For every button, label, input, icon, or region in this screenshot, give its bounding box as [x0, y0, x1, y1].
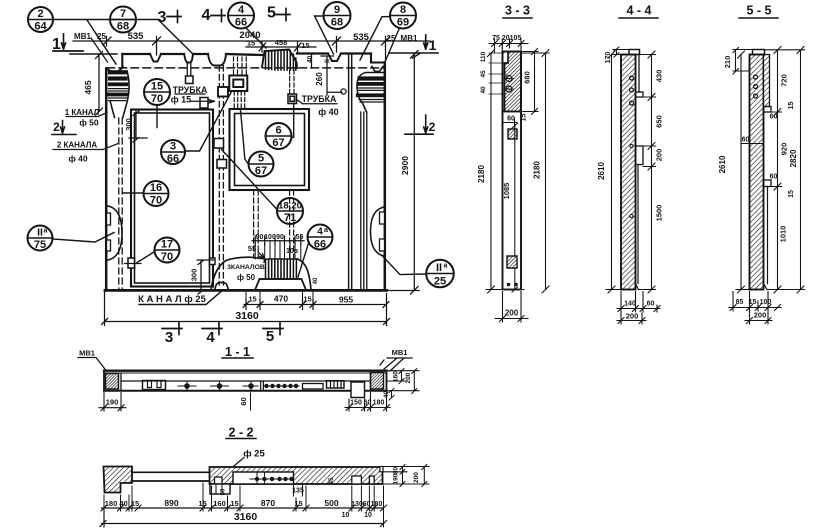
svg-text:200: 200 [405, 372, 412, 383]
svg-text:160: 160 [213, 499, 226, 508]
svg-text:25: 25 [434, 276, 446, 288]
svg-text:70: 70 [161, 251, 173, 263]
svg-text:60: 60 [239, 397, 248, 405]
svg-text:15: 15 [749, 299, 757, 306]
svg-text:16: 16 [150, 182, 162, 194]
svg-text:18,20: 18,20 [278, 201, 302, 212]
svg-text:1500: 1500 [655, 205, 664, 222]
svg-text:15: 15 [248, 295, 256, 304]
svg-text:15: 15 [230, 499, 238, 508]
svg-text:890: 890 [164, 498, 178, 508]
svg-text:ф 25: ф 25 [243, 449, 265, 460]
svg-text:60: 60 [221, 488, 227, 495]
svg-text:40: 40 [307, 55, 314, 63]
svg-text:15: 15 [521, 114, 528, 122]
svg-text:100: 100 [760, 299, 772, 306]
svg-text:15: 15 [788, 102, 795, 110]
svg-text:67: 67 [272, 137, 284, 149]
svg-text:1085: 1085 [502, 183, 511, 200]
svg-text:1 - 1: 1 - 1 [225, 345, 250, 359]
svg-text:7: 7 [120, 8, 126, 20]
svg-text:3: 3 [165, 329, 173, 346]
svg-text:10: 10 [342, 512, 350, 519]
svg-text:17: 17 [161, 239, 173, 251]
svg-text:200: 200 [505, 309, 519, 318]
svg-text:870: 870 [261, 498, 275, 508]
svg-text:55: 55 [248, 244, 256, 253]
svg-text:10в: 10в [286, 248, 299, 255]
svg-text:60: 60 [770, 114, 778, 121]
svg-text:60: 60 [770, 174, 778, 181]
svg-text:69: 69 [397, 17, 409, 29]
svg-text:2610: 2610 [718, 155, 727, 173]
svg-text:2180: 2180 [533, 161, 542, 179]
svg-text:920: 920 [780, 143, 789, 156]
svg-text:75: 75 [34, 239, 46, 251]
svg-text:4: 4 [202, 7, 211, 24]
svg-text:6: 6 [275, 125, 281, 137]
svg-text:680: 680 [523, 71, 532, 84]
svg-text:71: 71 [284, 212, 296, 224]
svg-text:15: 15 [788, 190, 795, 198]
svg-text:3: 3 [170, 141, 176, 153]
svg-text:430: 430 [655, 70, 664, 83]
svg-text:40: 40 [383, 391, 390, 399]
svg-text:1: 1 [52, 36, 61, 53]
svg-text:15: 15 [303, 295, 311, 304]
svg-text:190: 190 [106, 398, 119, 407]
svg-text:2610: 2610 [597, 162, 606, 180]
svg-text:3КАНАЛОВ: 3КАНАЛОВ [227, 264, 265, 271]
svg-text:500: 500 [324, 498, 338, 508]
svg-text:3160: 3160 [234, 511, 258, 523]
svg-text:470: 470 [274, 294, 288, 304]
svg-text:2180: 2180 [477, 165, 486, 183]
svg-text:5: 5 [267, 5, 276, 22]
svg-text:720: 720 [780, 74, 789, 87]
svg-text:25: 25 [387, 34, 396, 43]
svg-text:5 - 5: 5 - 5 [746, 4, 771, 18]
svg-text:МВ1: МВ1 [74, 32, 91, 41]
svg-text:2820: 2820 [789, 149, 798, 167]
svg-text:70: 70 [151, 93, 163, 105]
svg-text:II: II [436, 262, 442, 274]
svg-text:100: 100 [264, 234, 276, 241]
svg-text:1010: 1010 [779, 226, 788, 243]
svg-text:4: 4 [206, 329, 215, 346]
svg-text:40: 40 [119, 499, 127, 508]
svg-text:55: 55 [296, 234, 304, 241]
svg-text:190: 190 [393, 473, 400, 484]
svg-text:60: 60 [507, 116, 515, 123]
svg-text:66: 66 [167, 153, 179, 165]
svg-text:75: 75 [492, 35, 500, 42]
svg-text:85: 85 [736, 299, 744, 306]
svg-text:140: 140 [624, 301, 636, 308]
svg-text:210: 210 [723, 56, 732, 69]
svg-text:МВ1: МВ1 [401, 34, 418, 43]
svg-text:9: 9 [334, 4, 340, 16]
svg-text:1 КАНАЛ: 1 КАНАЛ [65, 108, 100, 117]
svg-text:650: 650 [655, 115, 664, 128]
svg-text:ТРУБКА: ТРУБКА [173, 85, 208, 95]
svg-text:40: 40 [313, 277, 319, 284]
svg-text:3160: 3160 [235, 310, 259, 322]
svg-text:2: 2 [429, 120, 436, 134]
svg-text:МВ1: МВ1 [79, 349, 95, 358]
svg-text:300: 300 [190, 269, 199, 282]
svg-text:170: 170 [605, 52, 612, 64]
svg-text:300: 300 [124, 118, 133, 131]
svg-text:465: 465 [83, 80, 93, 94]
svg-text:110: 110 [480, 51, 487, 62]
svg-text:10: 10 [364, 512, 372, 519]
svg-text:60: 60 [742, 137, 750, 144]
svg-text:II: II [37, 227, 43, 239]
svg-text:45: 45 [480, 70, 487, 78]
svg-text:180: 180 [105, 499, 118, 508]
svg-text:2: 2 [53, 120, 60, 134]
svg-text:5: 5 [258, 153, 264, 165]
svg-text:70: 70 [150, 195, 162, 207]
svg-text:a: a [44, 228, 48, 235]
svg-text:200: 200 [754, 311, 767, 320]
svg-text:955: 955 [339, 295, 353, 305]
svg-text:2 КАНАЛА: 2 КАНАЛА [57, 141, 98, 150]
svg-text:3: 3 [158, 9, 167, 26]
svg-text:4: 4 [238, 4, 245, 16]
svg-text:4: 4 [317, 227, 323, 238]
svg-text:535: 535 [128, 31, 145, 42]
svg-text:60: 60 [363, 501, 371, 508]
svg-text:180: 180 [371, 501, 383, 508]
svg-text:90: 90 [276, 234, 284, 241]
svg-text:535: 535 [353, 32, 370, 43]
svg-text:2: 2 [37, 8, 43, 20]
svg-text:2900: 2900 [400, 156, 410, 175]
svg-text:a: a [444, 263, 448, 270]
svg-text:ф 40: ф 40 [68, 154, 88, 164]
svg-text:200: 200 [413, 472, 420, 483]
svg-text:ТРУБКА: ТРУБКА [302, 94, 337, 104]
svg-text:90: 90 [256, 234, 264, 241]
svg-text:15: 15 [151, 81, 163, 93]
svg-text:3 - 3: 3 - 3 [505, 4, 530, 18]
svg-text:60: 60 [647, 301, 655, 308]
svg-text:ф 50: ф 50 [79, 118, 99, 128]
svg-text:105: 105 [510, 35, 522, 42]
svg-text:64: 64 [34, 21, 47, 33]
svg-text:130: 130 [351, 501, 363, 508]
svg-text:67: 67 [255, 165, 267, 177]
svg-text:ф 40: ф 40 [318, 107, 338, 117]
svg-text:200: 200 [626, 312, 639, 321]
svg-text:160: 160 [393, 371, 400, 382]
svg-text:68: 68 [331, 17, 343, 29]
svg-text:4 - 4: 4 - 4 [626, 4, 651, 18]
svg-text:66: 66 [235, 17, 247, 29]
svg-text:2 - 2: 2 - 2 [228, 426, 253, 440]
svg-text:15: 15 [198, 499, 206, 508]
svg-text:45: 45 [328, 477, 335, 485]
svg-text:15: 15 [301, 41, 309, 50]
svg-text:15: 15 [131, 499, 139, 508]
svg-text:260: 260 [315, 72, 324, 86]
svg-text:150: 150 [350, 400, 362, 407]
svg-text:К А Н А Л ф 25: К А Н А Л ф 25 [138, 294, 206, 305]
svg-text:20: 20 [502, 35, 510, 42]
svg-text:458: 458 [275, 38, 288, 47]
svg-text:ф 50: ф 50 [237, 273, 256, 282]
svg-text:ф 15: ф 15 [171, 95, 191, 105]
svg-text:40: 40 [480, 86, 487, 94]
svg-text:135: 135 [292, 488, 304, 495]
svg-text:15: 15 [247, 39, 255, 48]
svg-text:15: 15 [294, 499, 302, 508]
svg-text:МВ1: МВ1 [392, 348, 408, 357]
svg-text:66: 66 [314, 239, 326, 251]
svg-text:60: 60 [364, 400, 372, 407]
svg-text:25: 25 [97, 32, 106, 41]
svg-text:1: 1 [429, 37, 437, 53]
svg-text:200: 200 [655, 149, 664, 162]
svg-text:8: 8 [400, 4, 406, 16]
svg-text:5: 5 [266, 328, 274, 345]
svg-text:80: 80 [393, 467, 400, 475]
svg-text:180: 180 [373, 400, 385, 407]
